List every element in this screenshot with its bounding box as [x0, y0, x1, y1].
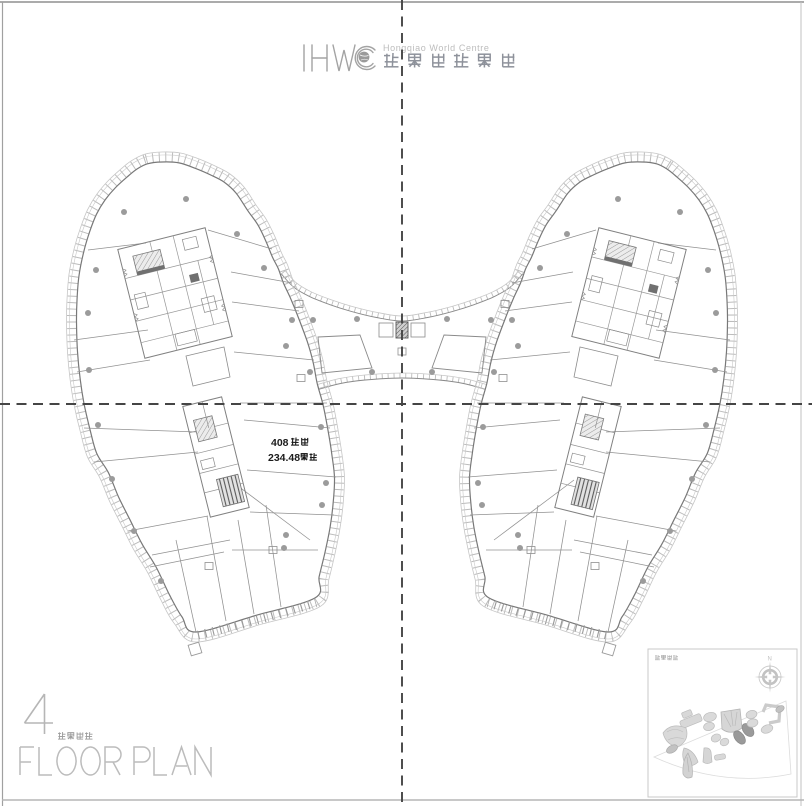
svg-text:Hongqiao World Centre: Hongqiao World Centre: [383, 43, 490, 53]
svg-text:N: N: [768, 657, 772, 663]
svg-text:234.48: 234.48: [268, 452, 300, 464]
svg-text:408: 408: [271, 437, 289, 449]
